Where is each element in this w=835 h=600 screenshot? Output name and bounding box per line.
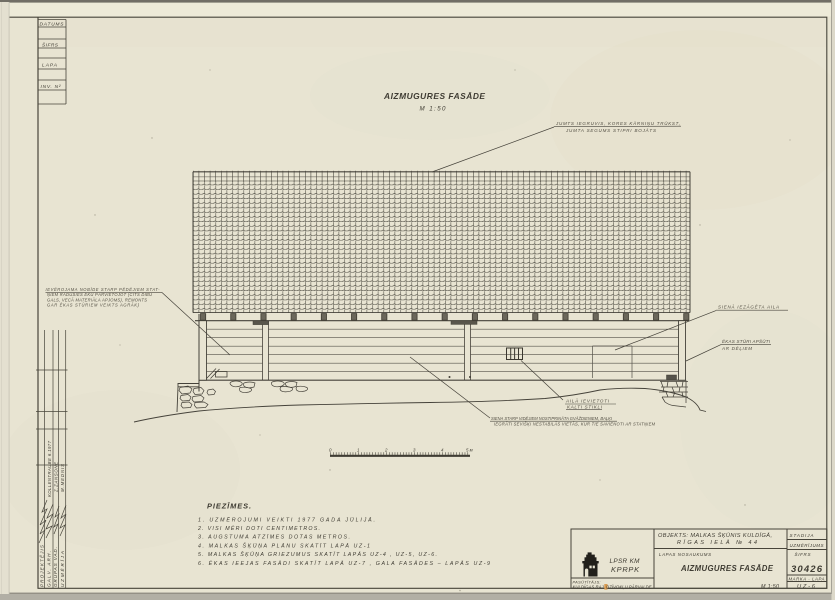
svg-text:GRUPAS VAD.: GRUPAS VAD.: [53, 547, 58, 587]
svg-text:UZMĒRĪJUMS: UZMĒRĪJUMS: [790, 542, 824, 548]
svg-text:GAR ĒKAS STŪRIEM VEIKTS AGRĀK): GAR ĒKAS STŪRIEM VEIKTS AGRĀK): [47, 303, 140, 308]
svg-text:LPSR KM: LPSR KM: [610, 558, 641, 565]
svg-text:AIZMUGURES FASĀDE: AIZMUGURES FASĀDE: [680, 564, 774, 573]
svg-text:LAPAS NOSAUKUMS: LAPAS NOSAUKUMS: [659, 552, 711, 557]
svg-text:MARKA - LAPA: MARKA - LAPA: [789, 576, 825, 581]
svg-text:KALTI STIKLI: KALTI STIKLI: [567, 404, 603, 409]
svg-text:Z.ZANSONE: Z.ZANSONE: [54, 462, 59, 493]
svg-text:ŠIFRS: ŠIFRS: [42, 42, 59, 49]
svg-text:KPRPK: KPRPK: [611, 565, 640, 574]
svg-text:SIENĀ IEZĀGĒTA AILA: SIENĀ IEZĀGĒTA AILA: [718, 304, 779, 310]
svg-text:30426: 30426: [791, 564, 823, 575]
svg-text:3. AUGSTUMA ATZĪMES DOTAS M: 3. AUGSTUMA ATZĪMES DOTAS METROS.: [198, 534, 350, 541]
svg-text:INV. N²: INV. N²: [41, 84, 61, 90]
svg-text:5. MALKAS ŠĶŪŅA GRIEZUMUS SK: 5. MALKAS ŠĶŪŅA GRIEZUMUS SKATĪT LAPĀS U…: [198, 551, 437, 558]
svg-text:UZ-6: UZ-6: [797, 584, 816, 590]
svg-text:IEGRĀTI SEVIŠĶI NESTABILĀS VIE: IEGRĀTI SEVIŠĶI NESTABILĀS VIETĀS, KUR T…: [494, 422, 656, 427]
svg-text:M.MEDNIS: M.MEDNIS: [60, 464, 65, 492]
svg-text:PIEZĪMES.: PIEZĪMES.: [207, 502, 251, 511]
svg-text:AIZMUGURES FASĀDE: AIZMUGURES FASĀDE: [383, 91, 485, 101]
svg-text:PROJEKTĒJIS: PROJEKTĒJIS: [39, 544, 45, 587]
svg-text:SIENA STARP VIDĒJIEM NOSTIPRIN: SIENA STARP VIDĒJIEM NOSTIPRINĀTA GVĀŽDI…: [491, 416, 613, 421]
svg-text:LAPA: LAPA: [42, 63, 57, 69]
svg-text:AILĀ IEVIETOTI: AILĀ IEVIETOTI: [565, 398, 610, 404]
svg-text:ĒKAS STŪRI APŠŪTI: ĒKAS STŪRI APŠŪTI: [722, 338, 771, 344]
svg-text:KULDĪGAS RAJ. DZĪVOKĻU PĀRVALD: KULDĪGAS RAJ. DZĪVOKĻU PĀRVALDE: [573, 584, 652, 589]
svg-text:2. VISI MĒRI DOTI CENTIMETRO: 2. VISI MĒRI DOTI CENTIMETROS.: [197, 525, 320, 532]
svg-text:AR DĒĻIEM: AR DĒĻIEM: [721, 345, 752, 351]
svg-text:5 м: 5 м: [466, 447, 473, 452]
svg-text:ŠIFRS: ŠIFRS: [795, 551, 811, 557]
svg-text:M 1:50: M 1:50: [761, 584, 779, 590]
svg-text:RĪGAS IELĀ № 44: RĪGAS IELĀ № 44: [677, 539, 757, 546]
svg-text:OBJEKTS: MALKAS ŠĶŪNIS KULD: OBJEKTS: MALKAS ŠĶŪNIS KULDĪGĀ,: [658, 532, 772, 539]
svg-text:STADIJA: STADIJA: [790, 533, 814, 538]
svg-text:2: 2: [384, 447, 388, 452]
svg-text:DATUMS: DATUMS: [40, 22, 65, 28]
svg-text:JUMTS IEGRUVIS, KORES KĀRNIŅU: JUMTS IEGRUVIS, KORES KĀRNIŅU TRŪKST,: [555, 120, 680, 126]
svg-text:KOLLENTRAUBE 6.1977: KOLLENTRAUBE 6.1977: [47, 440, 52, 497]
svg-text:JUMTA SEGUMS STIPRI BOJĀTS: JUMTA SEGUMS STIPRI BOJĀTS: [565, 127, 656, 133]
svg-text:UZMĒRĪJA: UZMĒRĪJA: [59, 551, 65, 587]
